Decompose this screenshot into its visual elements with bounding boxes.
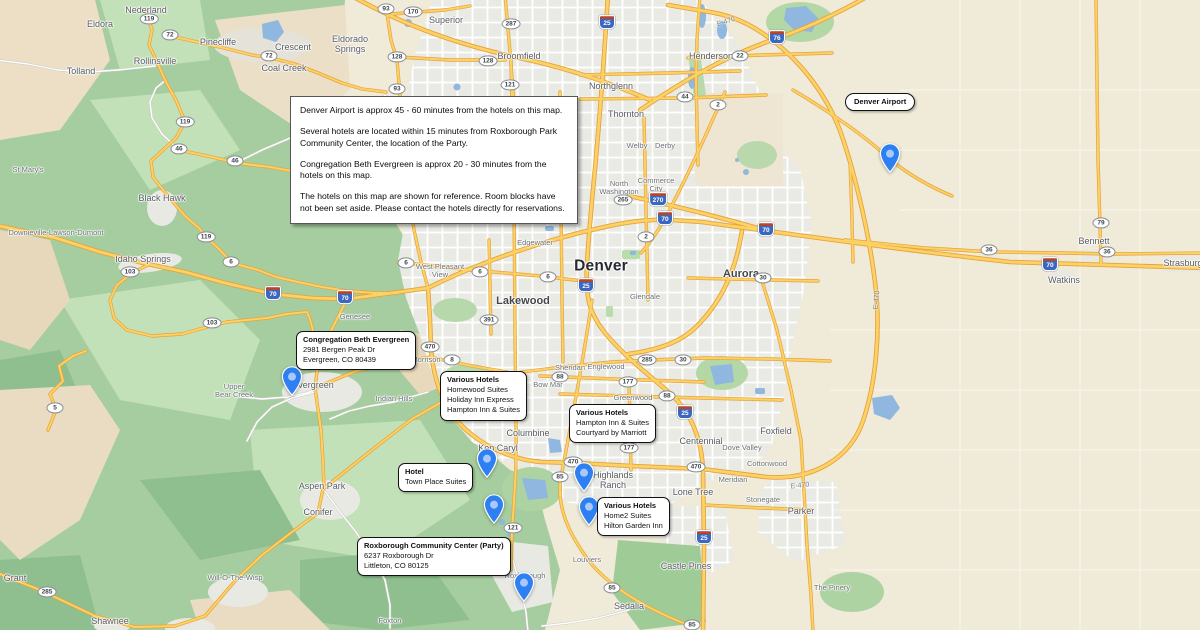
pin-icon <box>573 462 595 492</box>
pin-icon <box>476 448 498 478</box>
annotation-line: Hampton Inn & Suites <box>576 418 649 428</box>
annotation-title: Various Hotels <box>576 408 649 418</box>
pin-icon <box>513 572 535 602</box>
annotation-line: Town Place Suites <box>405 477 466 487</box>
annotation-title: Roxborough Community Center (Party) <box>364 541 504 551</box>
annotation-line: Homewood Suites <box>447 385 520 395</box>
pin-icon <box>281 366 303 396</box>
annotation-congregation-beth-evergreen: Congregation Beth Evergreen 2981 Bergen … <box>296 331 416 370</box>
map-screenshot: NederlandEldoraPinecliffeCrescentCoal Cr… <box>0 0 1200 630</box>
annotation-line: Evergreen, CO 80439 <box>303 355 409 365</box>
annotation-line: 6237 Roxborough Dr <box>364 551 504 561</box>
info-paragraph: Several hotels are located within 15 min… <box>300 126 568 150</box>
annotation-title: Hotel <box>405 467 466 477</box>
annotation-line: Courtyard by Marriott <box>576 428 649 438</box>
pin-icon <box>483 494 505 524</box>
annotation-line: Holiday Inn Express <box>447 395 520 405</box>
annotation-line: Hilton Garden Inn <box>604 521 663 531</box>
annotation-title: Various Hotels <box>604 501 663 511</box>
annotation-line: Hampton Inn & Suites <box>447 405 520 415</box>
annotation-title: Congregation Beth Evergreen <box>303 335 409 345</box>
annotation-roxborough-community-center: Roxborough Community Center (Party) 6237… <box>357 537 511 576</box>
annotation-line: 2981 Bergen Peak Dr <box>303 345 409 355</box>
info-box: Denver Airport is approx 45 - 60 minutes… <box>290 96 578 224</box>
map-canvas <box>0 0 1200 630</box>
annotation-line: Littleton, CO 80125 <box>364 561 504 571</box>
annotation-various-hotels-ken-caryl: Various Hotels Homewood Suites Holiday I… <box>440 371 527 421</box>
info-paragraph: Congregation Beth Evergreen is approx 20… <box>300 159 568 183</box>
annotation-various-hotels-highlands-ranch: Various Hotels Home2 Suites Hilton Garde… <box>597 497 670 536</box>
annotation-hotel-town-place: Hotel Town Place Suites <box>398 463 473 492</box>
info-paragraph: The hotels on this map are shown for ref… <box>300 191 568 215</box>
annotation-denver-airport: Denver Airport <box>845 93 915 111</box>
annotation-title: Various Hotels <box>447 375 520 385</box>
pin-icon <box>879 143 901 173</box>
info-paragraph: Denver Airport is approx 45 - 60 minutes… <box>300 105 568 117</box>
annotation-line: Home2 Suites <box>604 511 663 521</box>
annotation-various-hotels-county-line: Various Hotels Hampton Inn & Suites Cour… <box>569 404 656 443</box>
annotation-title: Denver Airport <box>854 97 906 107</box>
